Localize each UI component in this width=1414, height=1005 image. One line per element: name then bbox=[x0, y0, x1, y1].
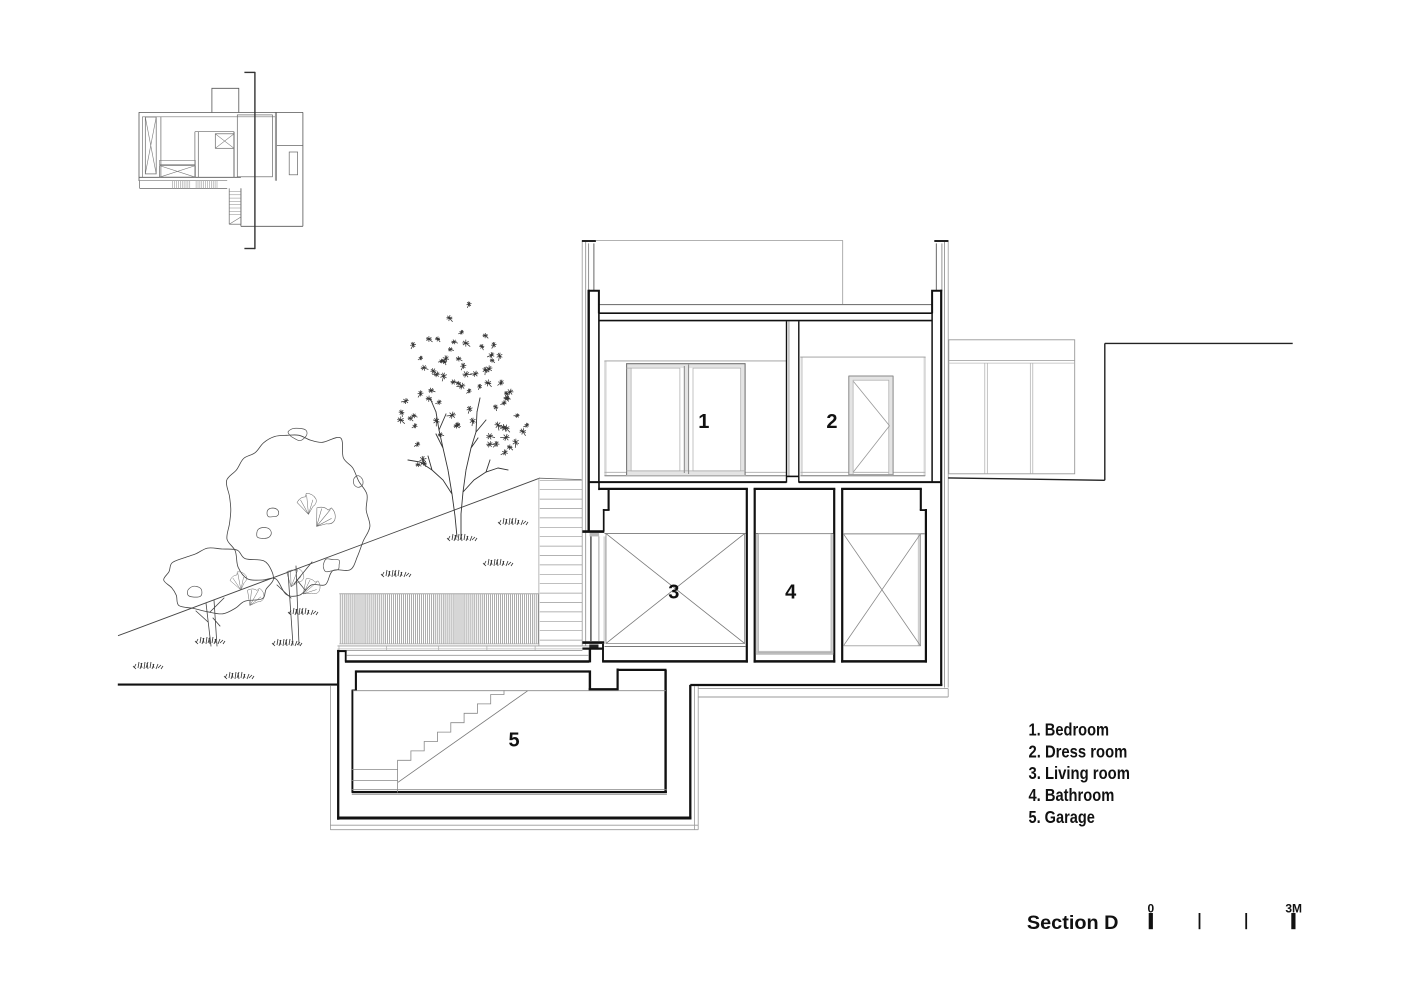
svg-text:3. Living room: 3. Living room bbox=[1029, 763, 1130, 783]
svg-text:5. Garage: 5. Garage bbox=[1029, 807, 1096, 827]
svg-text:2: 2 bbox=[826, 411, 837, 433]
svg-text:0: 0 bbox=[1147, 901, 1154, 915]
svg-text:4. Bathroom: 4. Bathroom bbox=[1029, 785, 1115, 805]
svg-text:4: 4 bbox=[785, 582, 797, 604]
svg-text:Section D: Section D bbox=[1027, 912, 1119, 934]
svg-text:1. Bedroom: 1. Bedroom bbox=[1029, 720, 1110, 740]
svg-text:5: 5 bbox=[508, 730, 519, 752]
svg-text:3: 3 bbox=[668, 582, 679, 604]
svg-text:2. Dress room: 2. Dress room bbox=[1029, 741, 1128, 761]
svg-text:3M: 3M bbox=[1285, 901, 1302, 915]
svg-text:1: 1 bbox=[698, 411, 709, 433]
